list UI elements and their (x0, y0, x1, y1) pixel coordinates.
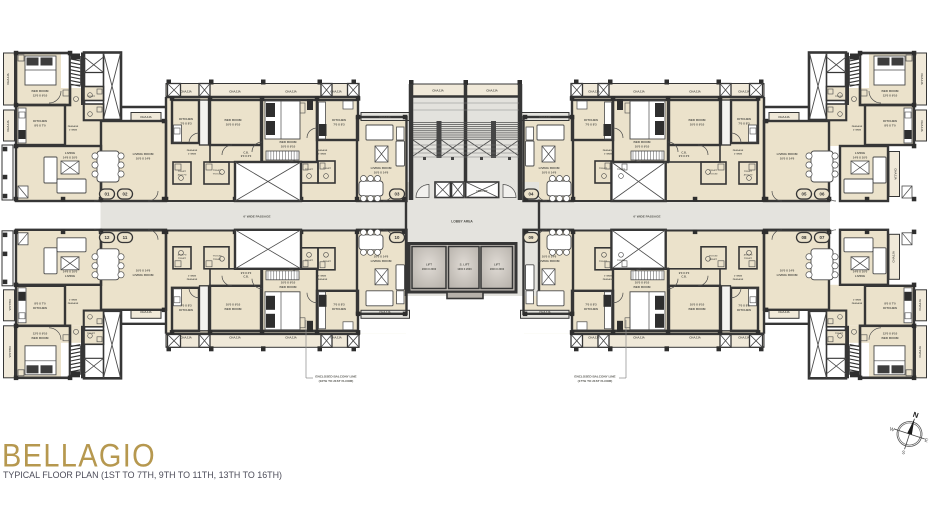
svg-text:8'0 X 7'0: 8'0 X 7'0 (884, 301, 896, 305)
svg-text:CHAJJA: CHAJJA (330, 90, 342, 94)
svg-text:10: 10 (395, 235, 400, 240)
svg-text:KITCHEN: KITCHEN (332, 307, 347, 311)
svg-text:2' WIDE: 2' WIDE (69, 299, 78, 301)
svg-text:12'0 X 9'10: 12'0 X 9'10 (883, 94, 898, 98)
svg-text:PASSAGE: PASSAGE (852, 302, 863, 305)
svg-text:PASSAGE: PASSAGE (733, 278, 744, 281)
svg-text:TOILET: TOILET (323, 168, 331, 170)
svg-text:06: 06 (820, 192, 825, 197)
svg-text:CHAJJA: CHAJJA (588, 335, 600, 339)
svg-text:CHAJJA: CHAJJA (229, 90, 241, 94)
svg-text:CHAJJA: CHAJJA (633, 90, 645, 94)
svg-text:BED ROOM: BED ROOM (224, 118, 241, 122)
svg-text:ENCLOSED BALCONY LINE: ENCLOSED BALCONY LINE (315, 375, 356, 379)
svg-text:CHAJJA: CHAJJA (738, 90, 750, 94)
svg-text:12'0 X 9'10: 12'0 X 9'10 (883, 331, 898, 335)
svg-text:14'6 X 10'0: 14'6 X 10'0 (63, 156, 78, 160)
svg-text:01: 01 (105, 192, 110, 197)
svg-text:TOILET: TOILET (87, 333, 95, 335)
svg-text:TOILET: TOILET (835, 96, 843, 98)
svg-text:CHAJJA: CHAJJA (140, 310, 152, 314)
svg-text:7'0 X 8'3: 7'0 X 8'3 (180, 303, 192, 307)
svg-text:LIVING ROOM: LIVING ROOM (539, 259, 560, 263)
svg-text:C.B.: C.B. (681, 151, 687, 155)
svg-text:KITCHEN: KITCHEN (584, 307, 599, 311)
svg-text:3' WIDE: 3' WIDE (604, 275, 613, 277)
svg-text:CHAJJA: CHAJJA (778, 115, 790, 119)
svg-text:PASSAGE: PASSAGE (68, 125, 79, 128)
svg-text:TOILET: TOILET (709, 259, 717, 261)
svg-text:07: 07 (820, 235, 825, 240)
svg-text:14'6 X 10'0: 14'6 X 10'0 (853, 269, 868, 273)
svg-text:6' WIDE PASSAGE: 6' WIDE PASSAGE (243, 215, 270, 219)
svg-text:10'0 X 9'10: 10'0 X 9'10 (690, 123, 705, 127)
svg-text:LIFT: LIFT (494, 263, 500, 267)
svg-text:CHAJJA: CHAJJA (486, 89, 498, 93)
svg-text:7'0 X 4'0: 7'0 X 4'0 (213, 254, 222, 257)
svg-text:BED ROOM: BED ROOM (881, 336, 898, 340)
svg-text:03: 03 (395, 192, 400, 197)
svg-text:PASSAGE: PASSAGE (68, 302, 79, 305)
svg-text:BED ROOM: BED ROOM (31, 336, 48, 340)
svg-text:CHAJJA: CHAJJA (180, 335, 192, 339)
svg-text:10'0 X 14'6: 10'0 X 14'6 (374, 254, 389, 258)
svg-text:11: 11 (123, 235, 128, 240)
svg-text:CHAJJA: CHAJJA (918, 298, 922, 310)
svg-text:LIVING ROOM: LIVING ROOM (539, 166, 560, 170)
svg-text:PASSAGE: PASSAGE (187, 149, 198, 152)
svg-text:CHAJJA: CHAJJA (379, 310, 391, 314)
svg-text:14'6 X 10'0: 14'6 X 10'0 (63, 269, 78, 273)
svg-text:C.B.: C.B. (243, 151, 249, 155)
svg-text:TOILET: TOILET (213, 259, 221, 261)
svg-text:10'0 X 14'6: 10'0 X 14'6 (136, 157, 151, 161)
svg-text:TOILET: TOILET (617, 169, 625, 171)
svg-text:CHAJJA: CHAJJA (8, 299, 12, 311)
svg-text:LIVING: LIVING (65, 274, 76, 278)
svg-text:CHAJJA: CHAJJA (588, 90, 600, 94)
svg-text:LIVING ROOM: LIVING ROOM (371, 166, 392, 170)
svg-text:CHAJJA: CHAJJA (918, 345, 922, 357)
svg-text:PASSAGE: PASSAGE (187, 278, 198, 281)
svg-text:PASSAGE: PASSAGE (603, 278, 614, 281)
svg-text:09: 09 (529, 235, 534, 240)
svg-text:PASSAGE: PASSAGE (317, 278, 328, 281)
svg-text:TOILET: TOILET (178, 258, 186, 260)
svg-text:12'0 X 9'10: 12'0 X 9'10 (33, 94, 48, 98)
svg-text:CHAJJA: CHAJJA (778, 310, 790, 314)
svg-text:8'0 X 7'0: 8'0 X 7'0 (884, 124, 896, 128)
svg-text:10'0 X 9'10: 10'0 X 9'10 (281, 280, 296, 284)
svg-text:08: 08 (802, 235, 807, 240)
svg-text:TOILET: TOILET (599, 261, 607, 263)
svg-text:CHAJJA: CHAJJA (229, 335, 241, 339)
svg-text:BED ROOM: BED ROOM (224, 307, 241, 311)
svg-text:4'6 X 7'0: 4'6 X 7'0 (744, 174, 753, 177)
svg-text:CHAJJA: CHAJJA (539, 310, 551, 314)
svg-text:10'0 X 14'6: 10'0 X 14'6 (780, 157, 795, 161)
svg-text:LIVING ROOM: LIVING ROOM (371, 259, 392, 263)
svg-text:TOILET: TOILET (835, 333, 843, 335)
svg-text:2' WIDE: 2' WIDE (734, 275, 743, 277)
svg-text:05: 05 (802, 192, 807, 197)
svg-text:10'0 X 14'6: 10'0 X 14'6 (780, 268, 795, 272)
svg-text:1600 X 2000: 1600 X 2000 (457, 268, 472, 271)
svg-text:CHAJJA: CHAJJA (379, 115, 391, 119)
svg-text:BED ROOM: BED ROOM (633, 140, 650, 144)
svg-text:9'0 X 2'0: 9'0 X 2'0 (679, 271, 690, 275)
svg-text:CHAJJA: CHAJJA (689, 335, 701, 339)
svg-text:LIFT: LIFT (426, 263, 432, 267)
svg-text:LOBBY AREA: LOBBY AREA (451, 220, 473, 224)
svg-text:10'0 X 14'6: 10'0 X 14'6 (542, 254, 557, 258)
svg-text:CHAJJA: CHAJJA (180, 90, 192, 94)
svg-text:10'0 X 9'10: 10'0 X 9'10 (226, 302, 241, 306)
svg-text:10'0 X 9'10: 10'0 X 9'10 (281, 145, 296, 149)
svg-text:TOILET: TOILET (305, 169, 313, 171)
svg-text:CHAJJA: CHAJJA (432, 89, 444, 93)
svg-text:CHAJJA: CHAJJA (285, 335, 297, 339)
svg-text:12: 12 (105, 235, 110, 240)
svg-text:TOILET: TOILET (617, 260, 625, 262)
svg-text:LIVING: LIVING (65, 151, 76, 155)
svg-text:4'6 X 7'0: 4'6 X 7'0 (178, 174, 187, 177)
svg-text:LIVING ROOM: LIVING ROOM (133, 152, 154, 156)
svg-text:2000 X 2000: 2000 X 2000 (422, 268, 437, 271)
svg-text:BED ROOM: BED ROOM (688, 307, 705, 311)
svg-text:04: 04 (529, 192, 534, 197)
svg-text:BED ROOM: BED ROOM (31, 89, 48, 93)
svg-text:TYPICAL FLOOR PLAN (1ST TO 7TH: TYPICAL FLOOR PLAN (1ST TO 7TH, 9TH TO 1… (3, 469, 282, 480)
svg-text:TOILET: TOILET (213, 170, 221, 172)
svg-text:10'0 X 9'10: 10'0 X 9'10 (226, 123, 241, 127)
svg-text:ENCLOSED BALCONY LINE: ENCLOSED BALCONY LINE (574, 375, 615, 379)
svg-text:3' WIDE: 3' WIDE (318, 275, 327, 277)
svg-text:(16TH TO 21ST FLOOR): (16TH TO 21ST FLOOR) (319, 379, 354, 383)
svg-text:2' WIDE: 2' WIDE (69, 130, 78, 132)
svg-text:2' WIDE: 2' WIDE (188, 275, 197, 277)
svg-text:KITCHEN: KITCHEN (737, 308, 752, 312)
svg-text:2' WIDE: 2' WIDE (188, 154, 197, 156)
svg-text:CHAJJA: CHAJJA (920, 120, 924, 132)
svg-text:PASSAGE: PASSAGE (603, 149, 614, 152)
svg-text:TOILET: TOILET (744, 171, 752, 173)
svg-text:2' WIDE: 2' WIDE (734, 154, 743, 156)
svg-text:TOILET: TOILET (709, 170, 717, 172)
svg-text:C.B.: C.B. (243, 274, 249, 278)
svg-text:BED ROOM: BED ROOM (881, 89, 898, 93)
svg-text:7'0 X 4'0: 7'0 X 4'0 (213, 173, 222, 176)
svg-text:LIVING ROOM: LIVING ROOM (133, 273, 154, 277)
svg-text:2000 X 2000: 2000 X 2000 (490, 268, 505, 271)
svg-text:TOILET: TOILET (178, 171, 186, 173)
svg-text:BED ROOM: BED ROOM (279, 285, 296, 289)
svg-text:7'0 X 4'0: 7'0 X 4'0 (709, 254, 718, 257)
svg-text:10'0 X 9'10: 10'0 X 9'10 (635, 145, 650, 149)
svg-text:LIVING ROOM: LIVING ROOM (777, 273, 798, 277)
svg-text:KITCHEN: KITCHEN (33, 306, 48, 310)
svg-text:TOILET: TOILET (87, 96, 95, 98)
svg-text:9'0 X 2'0: 9'0 X 2'0 (679, 154, 690, 158)
svg-text:10'0 X 14'6: 10'0 X 14'6 (542, 171, 557, 175)
svg-text:TOILET: TOILET (599, 168, 607, 170)
svg-text:12'0 X 9'10: 12'0 X 9'10 (33, 331, 48, 335)
svg-text:KITCHEN: KITCHEN (332, 118, 347, 122)
svg-text:3' WIDE: 3' WIDE (318, 154, 327, 156)
svg-text:8'0 X 7'0: 8'0 X 7'0 (34, 301, 46, 305)
svg-text:CHAJJA: CHAJJA (894, 168, 898, 180)
svg-text:CHAJJA: CHAJJA (6, 119, 10, 131)
svg-text:10'0 X 14'6: 10'0 X 14'6 (374, 171, 389, 175)
svg-text:LIVING: LIVING (855, 274, 866, 278)
svg-text:7'0 X 8'3: 7'0 X 8'3 (585, 123, 597, 127)
svg-text:2' WIDE: 2' WIDE (853, 130, 862, 132)
svg-text:CHAJJA: CHAJJA (689, 90, 701, 94)
svg-text:7'0 X 8'3: 7'0 X 8'3 (738, 122, 750, 126)
svg-text:10'0 X 14'6: 10'0 X 14'6 (136, 268, 151, 272)
svg-text:LIVING: LIVING (855, 151, 866, 155)
svg-text:7'0 X 8'3: 7'0 X 8'3 (333, 123, 345, 127)
svg-text:PASSAGE: PASSAGE (317, 149, 328, 152)
svg-text:7'0 X 8'3: 7'0 X 8'3 (333, 302, 345, 306)
svg-text:02: 02 (123, 192, 128, 197)
svg-text:BED ROOM: BED ROOM (688, 118, 705, 122)
svg-text:7'0 X 8'3: 7'0 X 8'3 (738, 303, 750, 307)
svg-text:6' WIDE PASSAGE: 6' WIDE PASSAGE (633, 215, 660, 219)
svg-text:7'0 X 8'3: 7'0 X 8'3 (180, 122, 192, 126)
svg-text:FIRE LIFT: FIRE LIFT (476, 190, 488, 193)
svg-text:KITCHEN: KITCHEN (179, 117, 194, 121)
svg-text:CHAJJA: CHAJJA (539, 115, 551, 119)
svg-text:TOILET: TOILET (744, 258, 752, 260)
svg-text:(17TH TO 21ST FLOOR): (17TH TO 21ST FLOOR) (578, 379, 613, 383)
svg-text:7'0 X 8'3: 7'0 X 8'3 (585, 302, 597, 306)
svg-text:KITCHEN: KITCHEN (179, 308, 194, 312)
svg-text:CHAJJA: CHAJJA (285, 90, 297, 94)
svg-text:CHAJJA: CHAJJA (633, 335, 645, 339)
svg-text:CHAJJA: CHAJJA (920, 73, 924, 85)
svg-text:CHAJJA: CHAJJA (6, 72, 10, 84)
svg-text:BED ROOM: BED ROOM (279, 140, 296, 144)
svg-text:KITCHEN: KITCHEN (883, 306, 898, 310)
svg-text:7'0 X 4'0: 7'0 X 4'0 (709, 173, 718, 176)
svg-text:CHAJJA: CHAJJA (738, 335, 750, 339)
svg-text:BED ROOM: BED ROOM (633, 285, 650, 289)
svg-text:KITCHEN: KITCHEN (584, 118, 599, 122)
svg-text:10'0 X 9'10: 10'0 X 9'10 (690, 302, 705, 306)
svg-text:C.B.: C.B. (681, 274, 687, 278)
svg-text:PASSAGE: PASSAGE (733, 149, 744, 152)
svg-text:S. LIFT: S. LIFT (460, 263, 470, 267)
svg-text:14'6 X 10'0: 14'6 X 10'0 (853, 156, 868, 160)
svg-text:TOILET: TOILET (323, 261, 331, 263)
svg-text:TOILET: TOILET (305, 260, 313, 262)
svg-text:4'6 X 7'0: 4'6 X 7'0 (744, 253, 753, 256)
svg-text:CHAJJA: CHAJJA (892, 250, 896, 262)
svg-text:CHAJJA: CHAJJA (330, 335, 342, 339)
svg-text:2' WIDE: 2' WIDE (853, 299, 862, 301)
svg-text:8'0 X 7'0: 8'0 X 7'0 (34, 124, 46, 128)
svg-text:KITCHEN: KITCHEN (33, 119, 48, 123)
svg-text:PASSAGE: PASSAGE (852, 125, 863, 128)
svg-text:CHAJJA: CHAJJA (140, 115, 152, 119)
svg-text:4'6 X 7'0: 4'6 X 7'0 (178, 253, 187, 256)
svg-text:9'0 X 2'0: 9'0 X 2'0 (241, 154, 252, 158)
svg-text:9'0 X 2'0: 9'0 X 2'0 (241, 271, 252, 275)
svg-text:3' WIDE: 3' WIDE (604, 154, 613, 156)
svg-text:LIVING ROOM: LIVING ROOM (777, 152, 798, 156)
svg-text:10'0 X 9'10: 10'0 X 9'10 (635, 280, 650, 284)
svg-text:KITCHEN: KITCHEN (737, 117, 752, 121)
svg-text:CHAJJA: CHAJJA (8, 346, 12, 358)
svg-text:KITCHEN: KITCHEN (883, 119, 898, 123)
